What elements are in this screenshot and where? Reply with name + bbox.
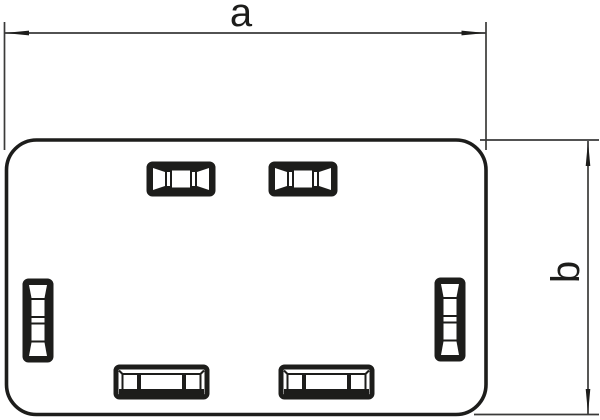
dimension-a-arrow-right-icon	[462, 31, 487, 36]
latch-slot-bottom-right	[281, 367, 372, 397]
end-piece-body	[7, 140, 487, 415]
latch-slot-top-right	[271, 164, 335, 194]
latch-slot-right-side	[437, 280, 463, 359]
dimension-a-label: a	[230, 0, 253, 35]
technical-drawing-canvas: a b	[0, 0, 600, 420]
body-outline	[7, 140, 487, 415]
dimension-a-arrow-left-icon	[5, 31, 30, 36]
dimension-b-arrow-top-icon	[586, 141, 591, 166]
dimension-b-arrow-bottom-icon	[586, 389, 591, 414]
latch-slot-left-side	[25, 281, 51, 360]
latch-slot-bottom-left	[116, 367, 207, 397]
dimension-b-label: b	[544, 261, 588, 283]
end-piece-dimension-drawing: a b	[0, 0, 600, 420]
latch-slot-top-left	[149, 164, 213, 194]
dimension-a	[5, 22, 487, 150]
